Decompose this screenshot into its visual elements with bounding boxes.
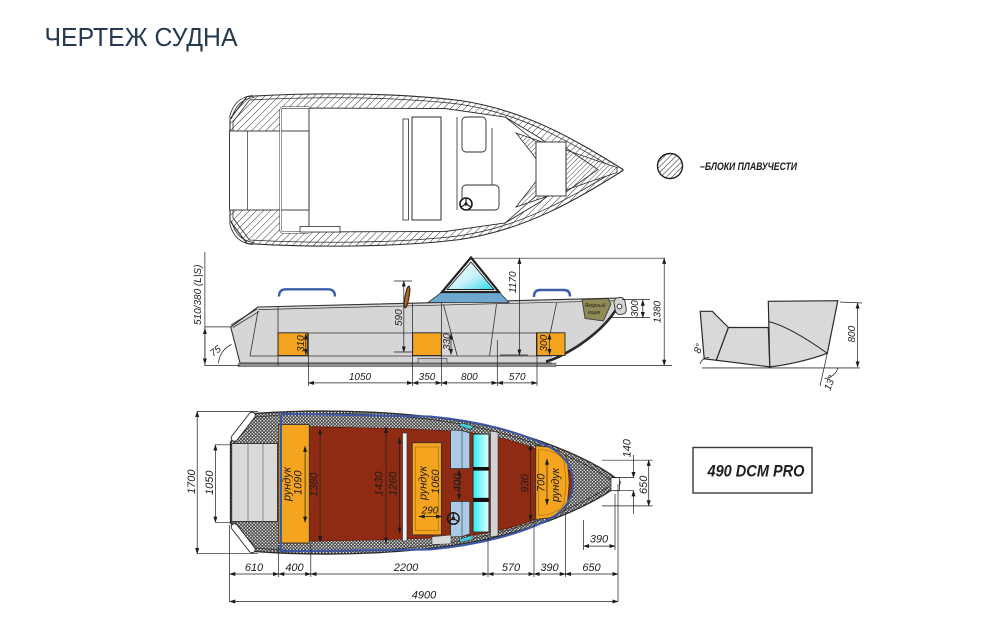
svg-text:610: 610 bbox=[245, 562, 264, 574]
svg-text:300: 300 bbox=[539, 334, 550, 351]
svg-text:13°: 13° bbox=[823, 374, 839, 392]
svg-text:2200: 2200 bbox=[393, 562, 419, 574]
svg-text:290: 290 bbox=[421, 506, 439, 517]
svg-text:1260: 1260 bbox=[388, 471, 400, 496]
svg-text:1430: 1430 bbox=[374, 471, 386, 496]
svg-text:рундук: рундук bbox=[550, 467, 562, 503]
svg-text:1380: 1380 bbox=[653, 300, 664, 323]
svg-text:930: 930 bbox=[520, 473, 532, 492]
svg-text:390: 390 bbox=[540, 562, 559, 574]
svg-text:140: 140 bbox=[622, 438, 634, 457]
svg-text:1050: 1050 bbox=[349, 372, 372, 383]
svg-text:700: 700 bbox=[535, 473, 547, 492]
svg-text:570: 570 bbox=[509, 372, 526, 383]
svg-text:650: 650 bbox=[582, 562, 601, 574]
svg-text:510/380 (L|S): 510/380 (L|S) bbox=[193, 265, 204, 325]
svg-text:1050: 1050 bbox=[204, 470, 216, 495]
svg-text:350: 350 bbox=[419, 372, 436, 383]
svg-text:Якорный: Якорный bbox=[584, 302, 606, 309]
svg-text:570: 570 bbox=[502, 562, 521, 574]
svg-text:1090: 1090 bbox=[293, 470, 305, 495]
svg-text:ЧЕРТЕЖ СУДНА: ЧЕРТЕЖ СУДНА bbox=[45, 24, 238, 52]
svg-text:1380: 1380 bbox=[309, 472, 321, 497]
svg-text:800: 800 bbox=[847, 325, 858, 342]
svg-text:390: 390 bbox=[590, 534, 609, 546]
svg-text:590: 590 bbox=[394, 309, 405, 326]
svg-text:1060: 1060 bbox=[430, 469, 442, 494]
svg-text:490 DCM PRO: 490 DCM PRO bbox=[707, 462, 805, 481]
svg-text:1170: 1170 bbox=[508, 271, 519, 293]
svg-text:400: 400 bbox=[285, 562, 304, 574]
svg-text:75: 75 bbox=[208, 344, 224, 360]
svg-text:1700: 1700 bbox=[186, 469, 198, 494]
svg-text:рундук: рундук bbox=[418, 465, 430, 501]
svg-text:–БЛОКИ ПЛАВУЧЕСТИ: –БЛОКИ ПЛАВУЧЕСТИ bbox=[700, 161, 798, 173]
svg-text:330: 330 bbox=[442, 333, 453, 350]
svg-text:ящик: ящик bbox=[587, 310, 601, 316]
svg-text:310: 310 bbox=[296, 335, 307, 352]
svg-text:650: 650 bbox=[638, 475, 650, 494]
svg-text:800: 800 bbox=[461, 372, 478, 383]
svg-text:300: 300 bbox=[630, 300, 641, 317]
svg-text:4900: 4900 bbox=[412, 590, 437, 602]
svg-text:400: 400 bbox=[452, 473, 464, 492]
